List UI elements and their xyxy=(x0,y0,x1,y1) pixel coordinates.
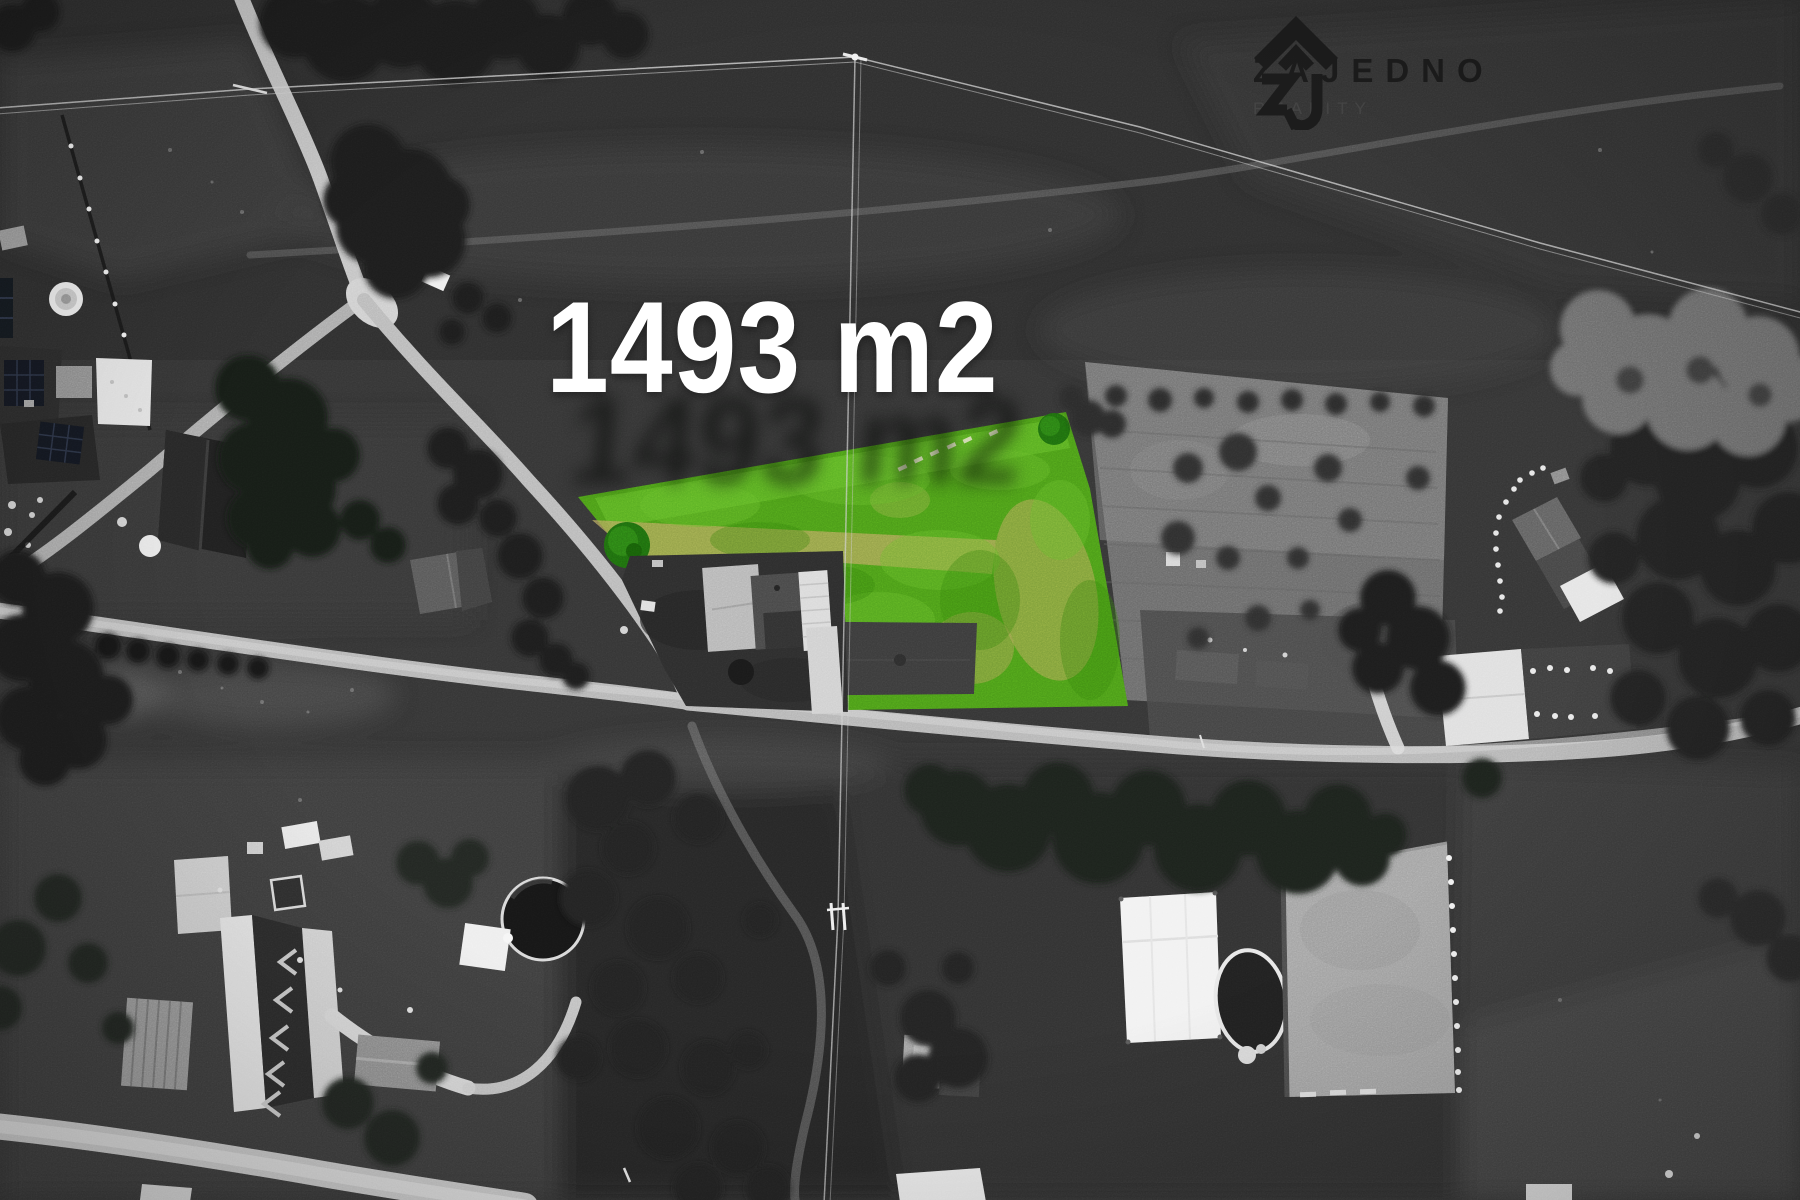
aerial-photo-canvas xyxy=(0,0,1800,1200)
photo-grain xyxy=(0,0,1800,1200)
zajedno-house-icon xyxy=(1253,12,1339,130)
aerial-photo: 1493 m2 1493 m2 ZAJEDNO REALITY xyxy=(0,0,1800,1200)
brand-logo: ZAJEDNO REALITY xyxy=(1253,12,1495,117)
plot-area-label: 1493 m2 xyxy=(546,272,999,422)
